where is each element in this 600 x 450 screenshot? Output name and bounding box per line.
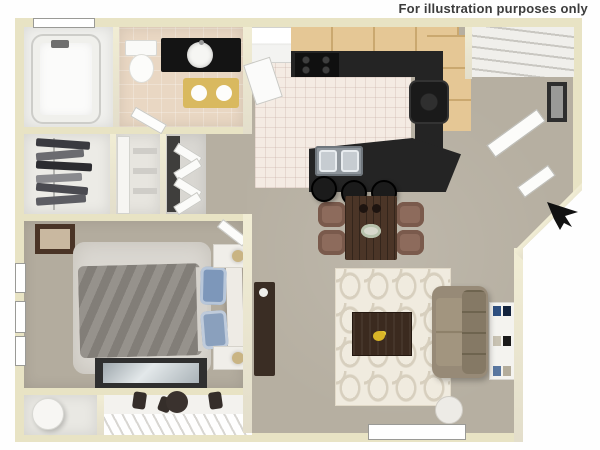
water-heater: [32, 398, 64, 430]
sofa-seat: [436, 298, 464, 366]
book: [503, 306, 511, 316]
book: [493, 366, 501, 376]
shelf: [133, 148, 157, 154]
wall: [110, 134, 116, 214]
closet-door: [117, 136, 130, 214]
double-sink: [315, 146, 363, 176]
patio-storage-room: [24, 395, 97, 435]
tub-faucet: [51, 40, 69, 48]
dining-chair: [396, 230, 424, 255]
floor-plan-image: For illustration purposes only: [0, 0, 600, 450]
floor-plan: [15, 18, 582, 442]
toilet-bowl: [129, 54, 154, 83]
book: [503, 336, 511, 346]
glass-top: [103, 363, 199, 383]
patio-chair: [132, 391, 147, 410]
bath-mat: [183, 78, 239, 108]
bedroom: [24, 221, 243, 388]
mat-circle: [216, 85, 232, 101]
table-bowl: [359, 204, 368, 213]
coat-closet-shelves: [470, 27, 574, 77]
tv-stand: [254, 282, 275, 376]
bedroom-window: [15, 336, 26, 366]
table-dish: [361, 224, 381, 238]
hallway-floor: [206, 134, 252, 214]
wall: [465, 27, 472, 79]
bathroom: [119, 27, 243, 127]
bedroom-window: [15, 301, 26, 333]
living-room-window: [368, 424, 466, 440]
dining-chair: [318, 230, 346, 255]
range-stove: [295, 53, 339, 77]
sink-basin: [341, 150, 359, 172]
wall: [160, 134, 166, 214]
wall: [243, 214, 252, 433]
dining-chair: [396, 202, 424, 227]
flowers-decor: [373, 331, 385, 341]
dining-chair: [318, 202, 346, 227]
laundry-closet: [166, 134, 206, 214]
sofa: [432, 286, 488, 378]
wall: [97, 395, 104, 435]
bathroom-door: [130, 107, 167, 135]
sofa-back-cushions: [462, 290, 486, 374]
patio-table: [166, 391, 188, 413]
nw-arrow-cursor-icon: [544, 198, 582, 234]
patio: [104, 395, 252, 435]
pillow: [200, 310, 229, 350]
shelf: [133, 188, 157, 194]
walk-in-closet: [24, 134, 110, 214]
pillow: [200, 266, 227, 305]
bedroom-window: [15, 263, 26, 293]
patio-chair: [208, 391, 223, 410]
book: [493, 336, 501, 346]
glass-top-dresser: [95, 358, 207, 388]
round-side-table: [435, 396, 463, 424]
wall: [113, 27, 119, 127]
mat-circle: [191, 85, 207, 101]
sink-basin: [319, 150, 337, 172]
disclaimer-text: For illustration purposes only: [399, 1, 588, 16]
book: [493, 306, 501, 316]
wall: [514, 248, 523, 442]
bathroom-window: [33, 18, 95, 28]
linen-closet: [116, 134, 160, 214]
cooktop: [409, 80, 449, 124]
sink: [187, 42, 213, 68]
shelf: [133, 168, 157, 174]
comforter: [78, 263, 202, 358]
wall-art: [547, 82, 567, 122]
patio-railing: [104, 414, 252, 435]
sink-faucet: [199, 40, 204, 45]
book: [503, 366, 511, 376]
decor-vase: [259, 288, 268, 297]
wall-art: [35, 224, 75, 254]
bathtub-room: [24, 27, 113, 127]
bookshelf: [489, 302, 515, 380]
coffee-table: [352, 312, 412, 356]
bathroom-vanity: [161, 38, 241, 72]
bar-stool: [311, 176, 337, 202]
table-bowl: [372, 204, 381, 213]
